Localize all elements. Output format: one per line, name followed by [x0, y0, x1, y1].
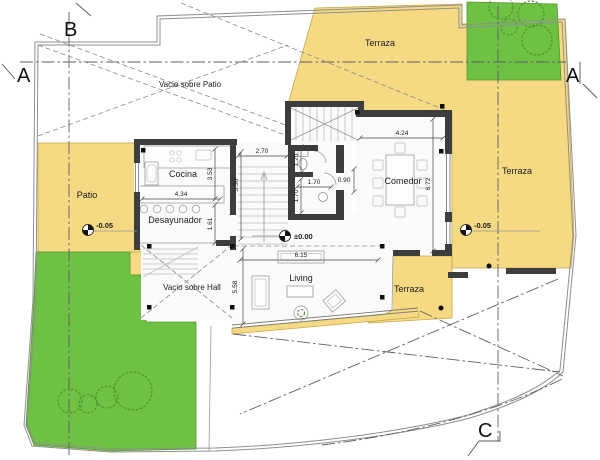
curved-road-line — [322, 379, 562, 445]
label-terraza-right: Terraza — [502, 166, 532, 176]
dim-bath-depth: 1.70 — [293, 189, 300, 202]
label-vacio-patio: Vacio sobre Patio — [159, 80, 222, 89]
dim-comedor-depth: 6.72 — [425, 177, 432, 190]
dim-living-width: 6.15 — [295, 252, 308, 259]
sofa — [252, 276, 269, 309]
dim-desayunador-depth: 1.61 — [207, 217, 214, 230]
label-vacio-hall: Vacio sobre Hall — [163, 283, 221, 292]
label-terraza-bottom: Terraza — [394, 284, 424, 294]
level-main: ±0.00 — [294, 232, 313, 241]
dim-wc: 1.20 — [293, 153, 300, 166]
dim-niche: 0.90 — [338, 177, 351, 184]
label-comedor: Comedor — [384, 176, 421, 186]
sink — [319, 193, 328, 202]
garden-top-right — [467, 2, 561, 80]
label-cocina: Cocina — [169, 169, 197, 179]
dim-bath-width: 1.70 — [308, 179, 321, 186]
label-terraza-top: Terraza — [365, 38, 395, 48]
level-patio: -0.05 — [96, 221, 113, 230]
label-patio: Patio — [77, 190, 98, 200]
floor-plan-page: 2.70 4.34 3.53 1.61 3.30 1.20 1.70 1.70 … — [0, 0, 600, 460]
section-a-left: A — [17, 65, 31, 87]
dim-kitchen-depth: 3.53 — [207, 167, 214, 180]
wc — [299, 159, 307, 170]
dim-stair-depth: 3.30 — [233, 178, 240, 191]
dim-hall-width: 2.70 — [256, 148, 269, 155]
label-living: Living — [289, 273, 313, 283]
coffee-table — [287, 286, 313, 297]
level-terrace: -0.05 — [474, 221, 491, 230]
dim-comedor-width: 4.24 — [396, 130, 409, 137]
section-a-right: A — [566, 65, 580, 87]
label-desayunador: Desayunador — [148, 215, 202, 225]
dim-living-depth: 5.58 — [232, 280, 239, 293]
stool — [140, 205, 148, 213]
section-b: B — [64, 19, 77, 41]
dim-island: 4.34 — [175, 191, 188, 198]
floor-plan-drawing: 2.70 4.34 3.53 1.61 3.30 1.20 1.70 1.70 … — [0, 0, 600, 460]
section-c: C — [478, 420, 492, 442]
